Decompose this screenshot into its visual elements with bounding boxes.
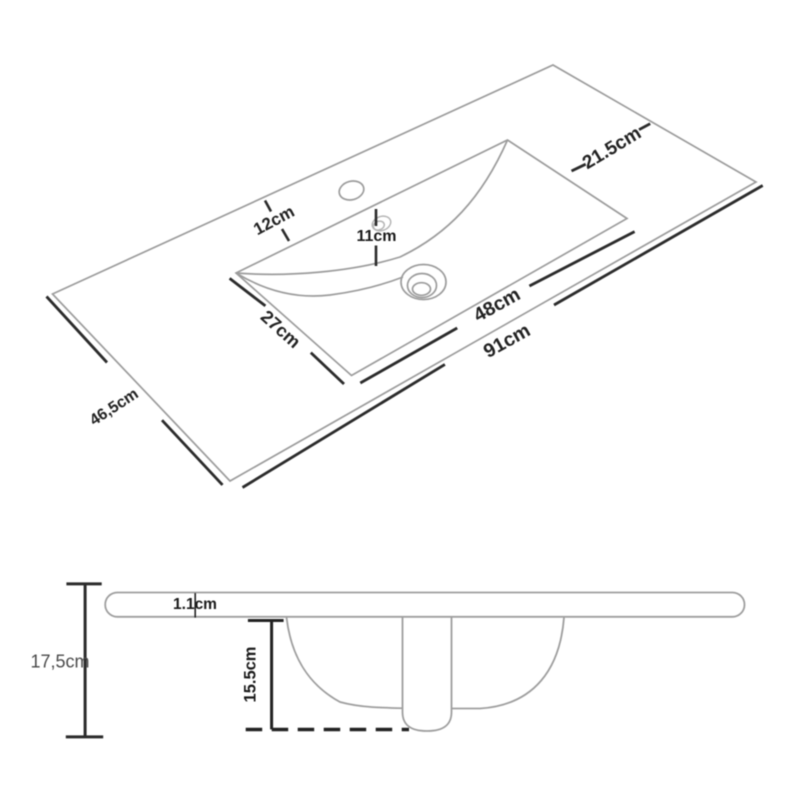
svg-text:15.5cm: 15.5cm <box>242 647 260 703</box>
svg-text:46,5cm: 46,5cm <box>87 386 142 430</box>
svg-text:17,5cm: 17,5cm <box>30 652 89 672</box>
svg-text:1.1cm: 1.1cm <box>173 596 217 613</box>
svg-text:11cm: 11cm <box>356 228 396 245</box>
